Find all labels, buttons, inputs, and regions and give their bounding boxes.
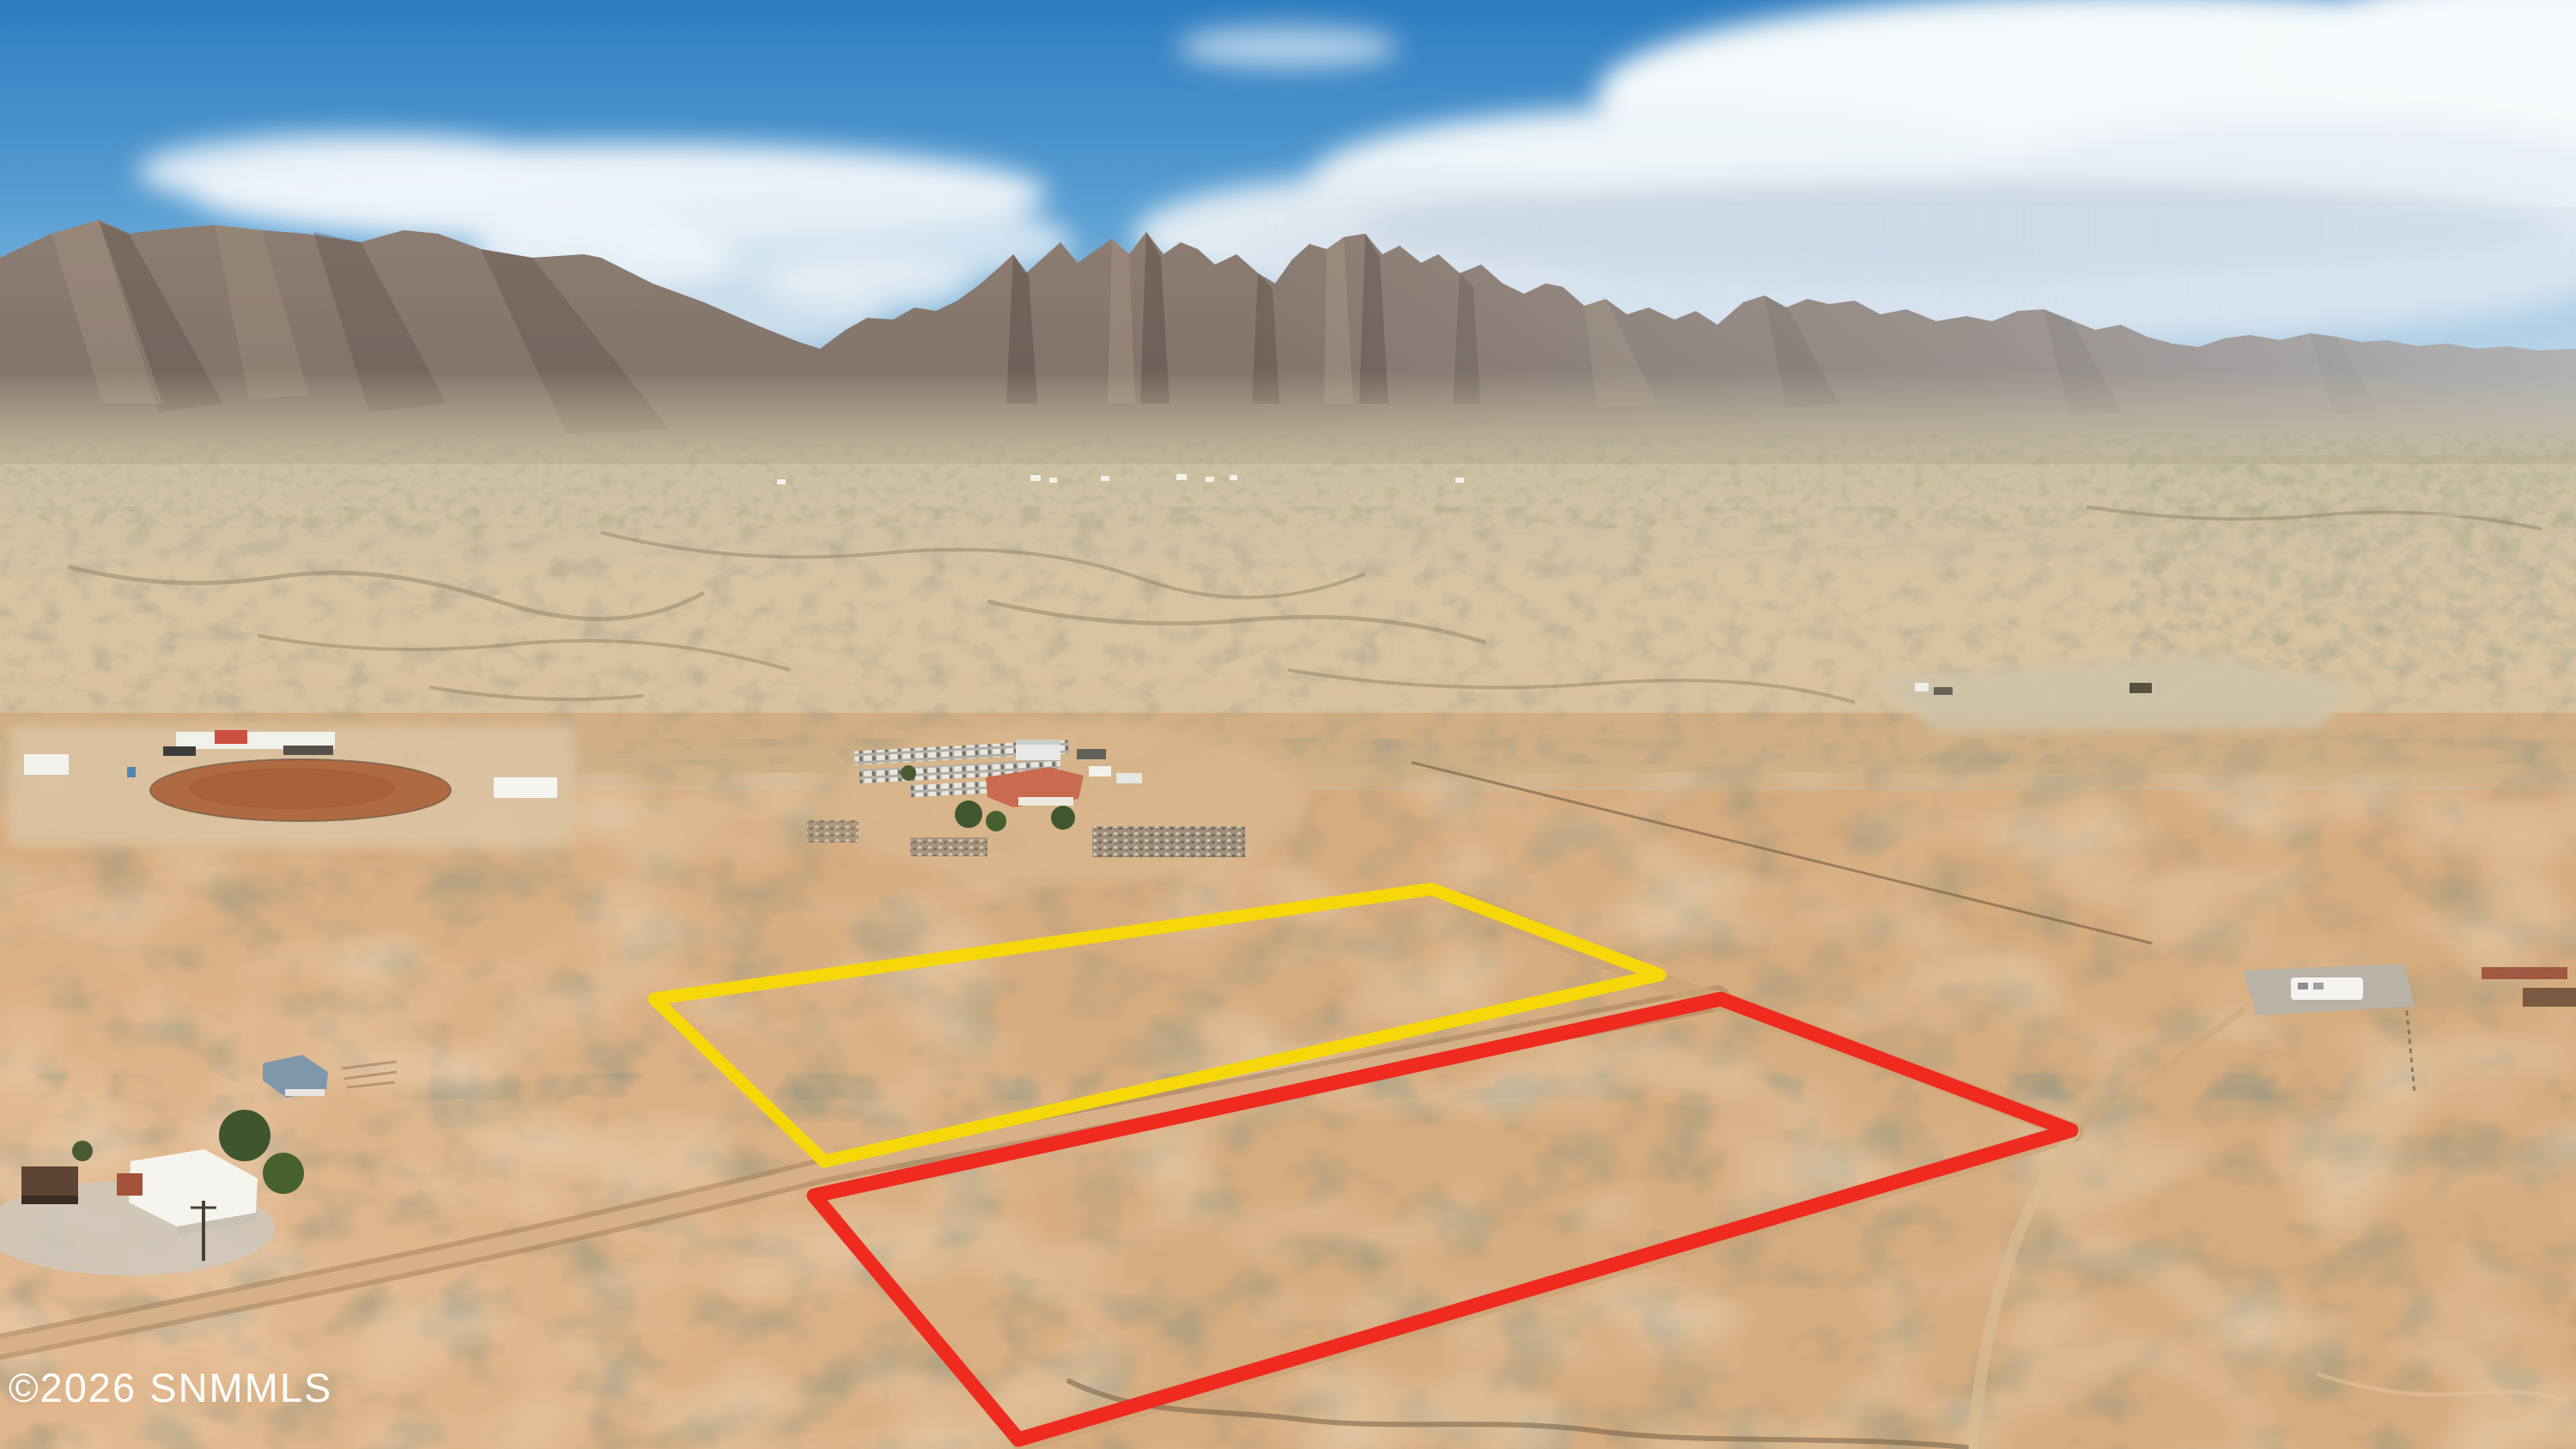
desert-basin [0, 434, 2576, 1449]
photo-canvas: ©2026 SNMMLS [0, 0, 2576, 1449]
shed-wall [285, 1089, 325, 1096]
mls-watermark: ©2026 SNMMLS [9, 1365, 332, 1410]
white-truck [1089, 766, 1111, 776]
tree [219, 1110, 270, 1161]
arena-compound [9, 726, 575, 846]
cloud-wisp [1176, 27, 1400, 68]
carport-shadow [21, 1196, 78, 1204]
white-truck [1116, 773, 1142, 783]
tree [72, 1141, 93, 1161]
house-wall [1018, 797, 1073, 806]
pad-vehicle [1915, 683, 1929, 691]
cloud [764, 254, 970, 313]
tree [1051, 806, 1075, 830]
distant-house [777, 479, 786, 484]
aerial-photo: ©2026 SNMMLS [0, 0, 2576, 1449]
lumber-pile [2482, 967, 2567, 979]
tree [986, 811, 1006, 831]
rv-window [2298, 983, 2308, 989]
blue-portable [127, 767, 136, 777]
distant-house [1101, 476, 1109, 481]
distant-house [1206, 477, 1214, 482]
distant-house [1230, 475, 1237, 480]
pad-structure [1934, 687, 1953, 695]
cloud [137, 134, 584, 210]
white-semi-trailer [494, 777, 557, 798]
dark-container [1077, 749, 1106, 759]
pad-structure [2129, 683, 2152, 693]
metal-building-roof [1016, 740, 1060, 745]
tree [901, 765, 916, 781]
distant-house [1455, 478, 1464, 483]
distant-house [1176, 474, 1187, 480]
junk-pile [807, 820, 859, 843]
equipment-row [283, 746, 333, 755]
junk-pile [910, 837, 987, 856]
arena-infield [189, 768, 395, 809]
tree [955, 801, 982, 828]
red-roof-hut [215, 730, 247, 744]
storage-container [2523, 988, 2576, 1007]
sand-streaks [0, 773, 2576, 1449]
rv-window [2313, 983, 2324, 989]
red-porch-roof [117, 1173, 143, 1196]
distant-house [1049, 478, 1057, 483]
dark-trailer [163, 746, 196, 756]
distant-house [1030, 475, 1041, 481]
junk-pile [1092, 826, 1245, 857]
tree [263, 1153, 304, 1194]
white-shed [24, 754, 69, 775]
